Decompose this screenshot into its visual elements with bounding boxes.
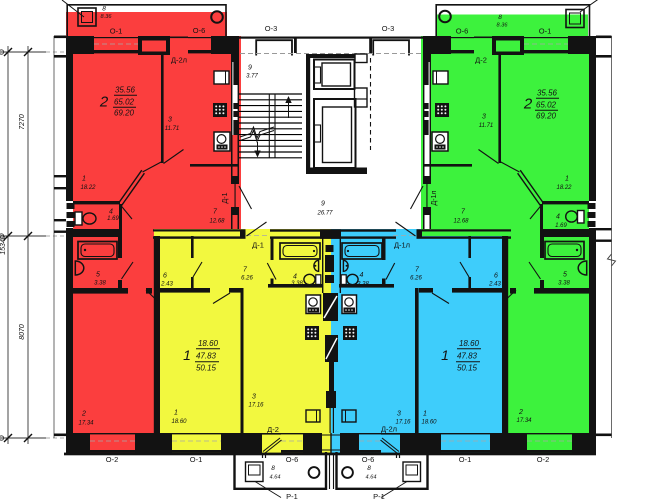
svg-text:6.26: 6.26 [410, 276, 422, 282]
svg-text:12.68: 12.68 [209, 219, 225, 225]
svg-text:4: 4 [556, 214, 560, 221]
svg-text:4: 4 [360, 272, 364, 279]
svg-text:17.34: 17.34 [78, 421, 94, 427]
svg-text:3.38: 3.38 [558, 281, 570, 287]
svg-text:О-2: О-2 [106, 455, 119, 464]
svg-text:17.16: 17.16 [248, 403, 264, 409]
svg-text:О-3: О-3 [382, 24, 395, 33]
svg-text:12.68: 12.68 [453, 219, 469, 225]
svg-text:65.02: 65.02 [536, 101, 557, 110]
svg-text:6.26: 6.26 [241, 276, 253, 282]
svg-text:9: 9 [248, 65, 252, 72]
svg-text:4: 4 [293, 274, 297, 281]
svg-text:О-2: О-2 [537, 455, 550, 464]
svg-text:17.16: 17.16 [395, 420, 411, 426]
svg-text:Р-1: Р-1 [286, 492, 298, 500]
svg-text:6: 6 [494, 273, 498, 280]
svg-text:1: 1 [174, 410, 178, 417]
svg-text:18.22: 18.22 [556, 185, 572, 191]
svg-text:3: 3 [168, 117, 172, 124]
svg-text:47.83: 47.83 [196, 352, 217, 361]
svg-text:15340: 15340 [0, 235, 7, 255]
svg-text:2.43: 2.43 [488, 282, 501, 288]
svg-text:1.69: 1.69 [107, 216, 119, 222]
svg-text:1: 1 [183, 347, 191, 363]
svg-text:50.15: 50.15 [457, 364, 478, 373]
svg-text:О-6: О-6 [362, 455, 375, 464]
svg-text:26.77: 26.77 [316, 211, 333, 217]
svg-text:О-6: О-6 [193, 26, 206, 35]
svg-text:69.20: 69.20 [114, 109, 135, 118]
svg-text:Д-2л: Д-2л [171, 56, 187, 65]
svg-text:18.22: 18.22 [80, 185, 96, 191]
svg-text:4.64: 4.64 [366, 475, 377, 481]
svg-text:9: 9 [321, 201, 325, 208]
svg-text:Д-2: Д-2 [475, 56, 487, 65]
svg-text:Д-2: Д-2 [267, 425, 279, 434]
svg-text:2: 2 [81, 411, 86, 418]
svg-text:О-6: О-6 [456, 27, 469, 36]
svg-text:Д-1л: Д-1л [394, 241, 410, 250]
svg-text:Д-2л: Д-2л [381, 425, 397, 434]
svg-text:2: 2 [99, 94, 109, 111]
svg-text:8: 8 [102, 6, 106, 13]
svg-text:18.60: 18.60 [198, 339, 219, 348]
svg-text:1: 1 [82, 176, 86, 183]
svg-text:4.64: 4.64 [270, 475, 281, 481]
svg-text:6: 6 [163, 273, 167, 280]
svg-text:35.56: 35.56 [115, 86, 136, 95]
svg-text:2: 2 [518, 409, 523, 416]
svg-text:1.69: 1.69 [555, 223, 567, 229]
svg-text:О-1: О-1 [110, 27, 123, 36]
svg-text:Р-1: Р-1 [373, 492, 385, 500]
svg-text:Д-1л: Д-1л [431, 190, 438, 205]
svg-text:5: 5 [563, 272, 567, 279]
svg-text:8: 8 [367, 465, 371, 472]
svg-text:65.02: 65.02 [114, 98, 135, 107]
svg-text:18.60: 18.60 [421, 420, 437, 426]
svg-text:5: 5 [96, 272, 100, 279]
svg-text:3.38: 3.38 [291, 281, 303, 287]
svg-text:7270: 7270 [19, 114, 26, 130]
svg-text:3.38: 3.38 [357, 282, 369, 288]
svg-text:3.38: 3.38 [94, 281, 106, 287]
svg-text:1: 1 [565, 176, 569, 183]
svg-text:2: 2 [523, 96, 533, 113]
svg-text:3.77: 3.77 [246, 74, 258, 80]
svg-text:50.15: 50.15 [196, 364, 217, 373]
svg-text:Д-1: Д-1 [222, 192, 229, 203]
svg-text:Д-1: Д-1 [252, 241, 264, 250]
svg-text:8.36: 8.36 [497, 23, 509, 29]
svg-text:О-1: О-1 [459, 455, 472, 464]
svg-text:О-6: О-6 [286, 455, 299, 464]
svg-text:8: 8 [271, 465, 275, 472]
svg-text:18.60: 18.60 [459, 339, 480, 348]
svg-text:О-1: О-1 [190, 455, 203, 464]
svg-text:3: 3 [397, 411, 401, 418]
svg-text:35.56: 35.56 [537, 89, 558, 98]
svg-text:О-3: О-3 [265, 24, 278, 33]
svg-text:47.83: 47.83 [457, 352, 478, 361]
svg-text:3: 3 [252, 394, 256, 401]
svg-text:8: 8 [498, 14, 502, 21]
svg-text:1: 1 [441, 347, 449, 363]
svg-text:69.20: 69.20 [536, 112, 557, 121]
svg-text:17.34: 17.34 [516, 418, 532, 424]
svg-text:11.71: 11.71 [479, 123, 494, 129]
svg-text:18.60: 18.60 [171, 419, 187, 425]
svg-text:2.43: 2.43 [160, 282, 173, 288]
svg-text:11.71: 11.71 [165, 126, 180, 132]
svg-text:О-1: О-1 [539, 27, 552, 36]
svg-text:8070: 8070 [19, 324, 26, 340]
svg-text:4: 4 [109, 209, 113, 216]
svg-text:1: 1 [423, 411, 427, 418]
svg-text:8.36: 8.36 [101, 14, 113, 20]
svg-text:3: 3 [482, 114, 486, 121]
